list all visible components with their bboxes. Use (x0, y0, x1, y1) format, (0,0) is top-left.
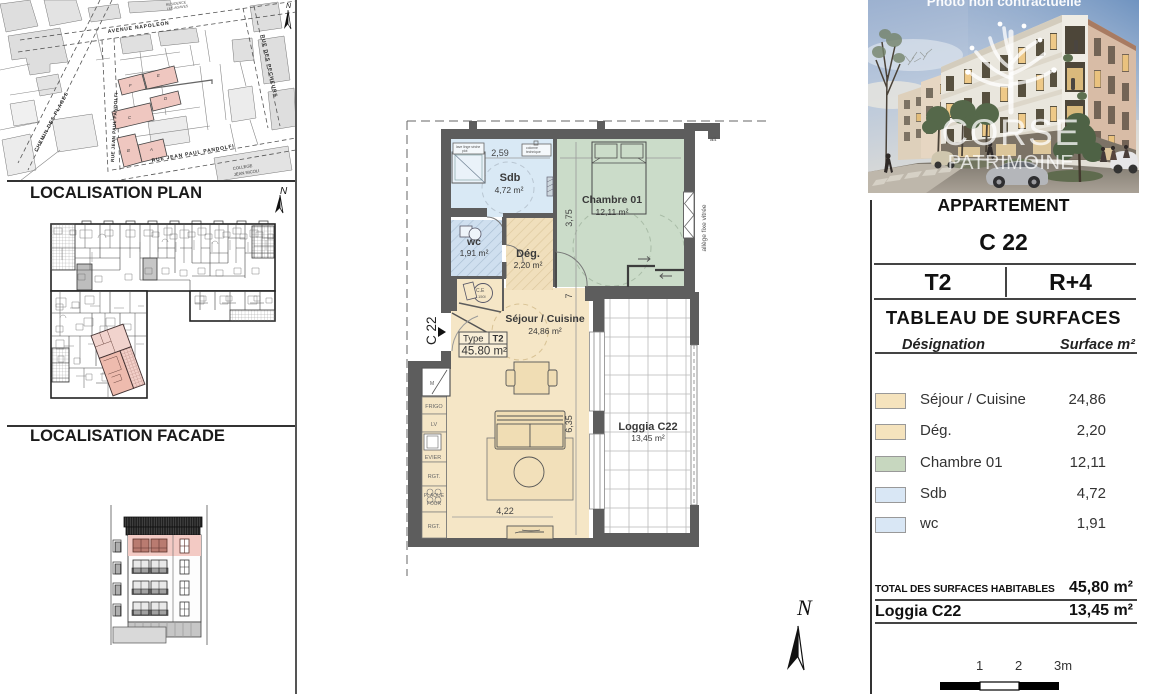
svg-text:E: E (157, 73, 160, 78)
svg-text:D: D (164, 96, 167, 101)
svg-text:allège fixe vitrée: allège fixe vitrée (701, 204, 708, 251)
svg-text:wc: wc (466, 236, 481, 248)
svg-text:4,22: 4,22 (496, 506, 514, 516)
svg-text:C 22: C 22 (424, 316, 439, 345)
svg-text:Séjour / Cuisine: Séjour / Cuisine (505, 313, 585, 325)
svg-text:24,86 m²: 24,86 m² (528, 326, 562, 336)
svg-text:2,20 m²: 2,20 m² (514, 260, 543, 270)
svg-text:3m: 3m (1054, 658, 1072, 673)
svg-text:EVIER: EVIER (425, 455, 442, 461)
svg-text:FOUR: FOUR (427, 501, 442, 507)
svg-text:6,35: 6,35 (564, 415, 574, 433)
svg-text:N: N (280, 186, 288, 197)
svg-text:Loggia C22: Loggia C22 (618, 421, 677, 433)
svg-text:B: B (127, 148, 130, 153)
svg-text:RGT.: RGT. (428, 474, 441, 480)
svg-text:7: 7 (564, 293, 574, 298)
svg-text:T2: T2 (493, 334, 504, 345)
svg-text:12,11 m²: 12,11 m² (596, 207, 629, 217)
svg-text:CORSE: CORSE (941, 112, 1080, 153)
svg-text:4,72 m²: 4,72 m² (495, 185, 524, 195)
svg-text:Sdb: Sdb (500, 172, 521, 184)
svg-text:1: 1 (976, 658, 983, 673)
svg-text:A: A (149, 147, 153, 152)
svg-text:3,75: 3,75 (564, 209, 574, 227)
svg-text:1,91 m²: 1,91 m² (460, 248, 489, 258)
svg-text:Chambre 01: Chambre 01 (582, 194, 642, 206)
svg-text:M: M (430, 381, 434, 387)
svg-text:45.80 m²: 45.80 m² (462, 346, 508, 358)
svg-text:Dég.: Dég. (516, 248, 540, 260)
svg-text:FRIGO: FRIGO (425, 404, 443, 410)
svg-text:2,59: 2,59 (491, 148, 509, 158)
svg-text:alt: alt (710, 137, 717, 143)
svg-text:13,45 m²: 13,45 m² (631, 433, 665, 443)
svg-text:PATRIMOINE: PATRIMOINE (948, 152, 1074, 174)
svg-text:plot: plot (462, 149, 468, 153)
svg-text:2: 2 (1015, 658, 1022, 673)
svg-text:Photo non contractuelle: Photo non contractuelle (927, 0, 1082, 9)
svg-text:F: F (129, 83, 132, 88)
svg-text:150l: 150l (478, 294, 486, 299)
svg-text:PLAQUE: PLAQUE (424, 493, 445, 499)
svg-text:lave linge sèche: lave linge sèche (456, 145, 480, 149)
svg-text:N: N (796, 595, 813, 620)
svg-text:Type: Type (463, 334, 484, 345)
svg-text:technique: technique (526, 150, 541, 154)
svg-text:RGT.: RGT. (428, 524, 441, 530)
svg-text:LV: LV (431, 422, 438, 428)
